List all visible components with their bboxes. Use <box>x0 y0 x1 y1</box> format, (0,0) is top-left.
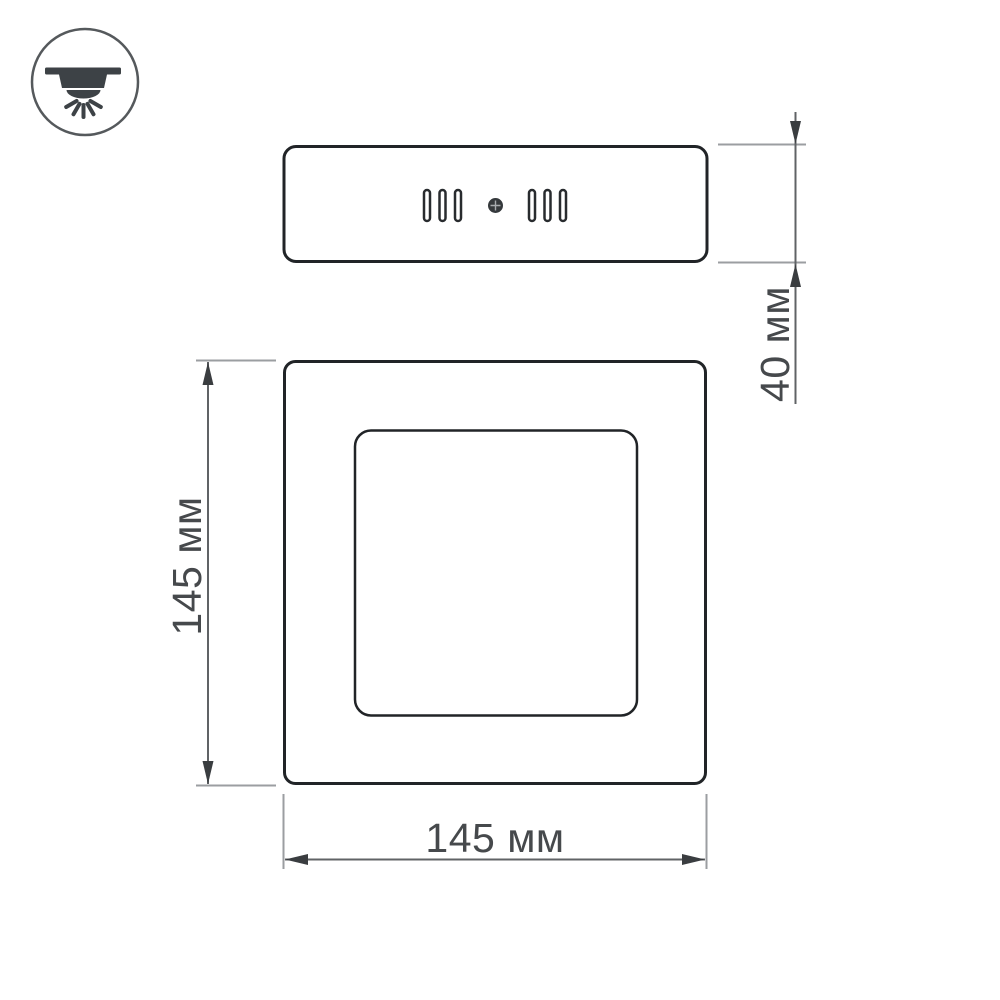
front-view <box>285 362 706 784</box>
arrow-down-icon <box>790 121 801 144</box>
side-view <box>284 147 707 262</box>
height-dimension-label: 145 мм <box>164 496 210 635</box>
arrow-left-icon <box>285 854 308 865</box>
arrow-up-icon <box>790 264 801 287</box>
width-dimension-label: 145 мм <box>425 815 564 861</box>
height-dimension: 145 мм <box>164 361 276 786</box>
width-dimension: 145 мм <box>284 794 707 869</box>
inner-panel-outline <box>355 431 637 716</box>
dimension-drawing-svg: 40 мм 145 мм 145 мм <box>0 0 1000 1000</box>
arrow-right-icon <box>682 854 705 865</box>
depth-dimension: 40 мм <box>718 112 806 404</box>
depth-dimension-label: 40 мм <box>752 286 798 402</box>
product-dimension-drawing: 40 мм 145 мм 145 мм <box>0 0 1000 1000</box>
arrow-up-icon <box>203 362 214 385</box>
arrow-down-icon <box>203 761 214 784</box>
downlight-flange <box>45 68 121 75</box>
downlight-icon <box>32 29 138 135</box>
downlight-body <box>59 75 107 89</box>
